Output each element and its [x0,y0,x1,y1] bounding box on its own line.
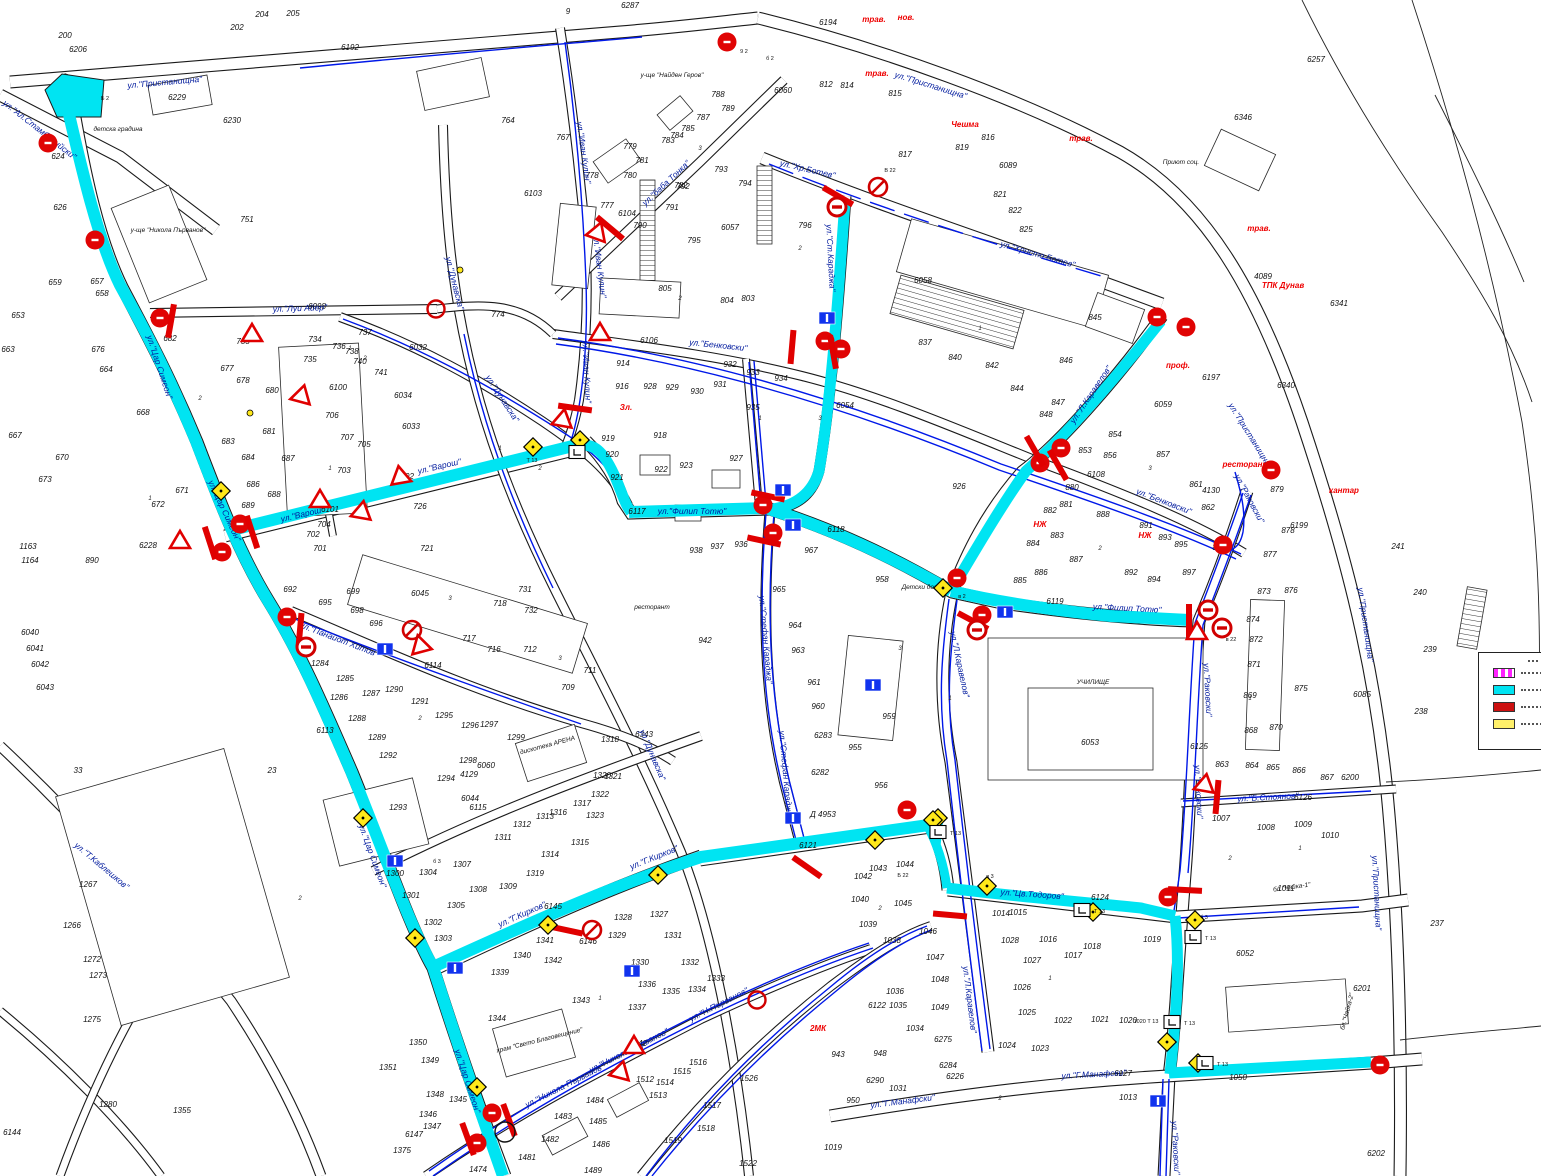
parcel-number: 1010 [1321,831,1339,840]
parcel-number: 1318 [601,735,619,744]
parcel-number: 886 [1034,568,1048,577]
parcel-number: 241 [1390,542,1404,551]
parcel-number: 6115 [469,803,487,812]
poi-label: УЧИЛИЩЕ [1076,679,1110,686]
junction-box-marker [569,446,585,459]
parcel-number: 805 [658,284,672,293]
sign-glyph [394,857,396,865]
parcel-number: 1513 [649,1091,667,1100]
parcel-number: 6040 [21,628,39,637]
parcel-number: 965 [772,585,786,594]
parcel-number: 238 [1413,707,1428,716]
parcel-number: 6052 [1236,949,1254,958]
parcel-number: 1019 [824,1143,842,1152]
map-canvas[interactable]: 2006206204205202619262879619462296230751… [0,0,1541,1176]
parcel-number: 6145 [544,902,562,911]
parcel-number: 853 [1078,446,1092,455]
hydrant-glyph [157,317,164,319]
subparcel-number: 1 [1048,976,1051,982]
parcel-number: 658 [95,289,109,298]
parcel-number: 854 [1108,430,1122,439]
parcel-number: 6202 [1367,1149,1385,1158]
parcel-number: 1346 [419,1110,437,1119]
parcel-number: 659 [48,278,62,287]
parcel-number: 731 [518,585,531,594]
red-bar-marker [202,526,218,560]
parcel-number: 777 [600,201,614,210]
hydrant-glyph [92,239,99,241]
no-entry-bar [972,628,982,631]
parcel-number: 712 [523,645,537,654]
hydrant-glyph [45,142,52,144]
street-name-label: ул."Раковски" [1202,662,1215,718]
parcel-number: 1022 [1054,1016,1072,1025]
parcel-number: 1028 [1001,936,1019,945]
utility-line [556,344,1236,559]
path-line [1302,0,1532,402]
parcel-number: 200 [57,31,72,40]
parcel-number: 677 [220,364,234,373]
junction-box-marker: Т 13 [1185,931,1216,944]
parcel-number: 1315 [571,838,589,847]
parcel-number: 1285 [336,674,354,683]
parcel-number: 861 [1189,480,1202,489]
parcel-number: 942 [698,636,712,645]
parcel-number: 943 [831,1050,845,1059]
parcel-number: 695 [318,598,332,607]
parcel-number: 6197 [1202,373,1220,382]
info-sign-marker [387,855,403,867]
parcel-number: 782 [674,181,688,190]
parcel-number: 890 [85,556,99,565]
parcel-number: 872 [1249,635,1263,644]
parcel-number: 796 [798,221,812,230]
parcel-number: 1484 [586,1096,604,1105]
parcel-number: 1014 [992,909,1010,918]
info-sign-marker [785,519,801,531]
warning-triangle-marker [590,323,610,340]
parcel-number: 1046 [919,927,937,936]
parcel-number: 6201 [1353,984,1371,993]
parcel-number: 1350 [409,1038,427,1047]
parcel-number: 1044 [896,860,914,869]
parcel-number: 1474 [469,1165,487,1174]
parcel-number: 814 [840,81,854,90]
parcel-number: 718 [493,599,507,608]
street-name-label: ул."Цар Симеон" [145,333,176,401]
info-sign-marker [997,606,1013,618]
hydrant-marker [151,309,170,328]
parcel-number: 1290 [385,685,403,694]
subparcel-number: 1 [758,416,761,422]
parcel-number: 1316 [549,808,567,817]
parcel-number: 1050 [1229,1073,1247,1082]
hydrant-marker [1148,308,1167,327]
parcel-number: 1329 [608,931,626,940]
parcel-number: 6113 [316,726,334,735]
parcel-number: 967 [804,546,818,555]
legend-swatch [1493,668,1515,678]
parcel-number: 1312 [513,820,531,829]
parcel-number: 204 [254,10,269,19]
parcel-number: 788 [711,90,725,99]
subparcel-number: 2 [362,356,367,362]
parcel-number: 1309 [499,882,517,891]
parcel-number: 1308 [469,885,487,894]
parcel-number: 741 [374,368,387,377]
parcel-number: 959 [882,712,896,721]
legend-swatch [1493,685,1515,695]
box-label: Т 13 [1205,936,1216,942]
hydrant-glyph [979,614,986,616]
parcel-number: 865 [1266,763,1280,772]
parcel-number: 1007 [1212,814,1230,823]
parcel-number: 1482 [541,1135,559,1144]
parcel-number: 6060 [774,86,792,95]
building [417,58,490,111]
poi-label: Приют соц. [1163,159,1200,166]
parcel-number: 935 [746,403,760,412]
parcel-number: 825 [1019,225,1033,234]
parcel-number: 1024 [998,1041,1016,1050]
parcel-number: 701 [313,544,326,553]
parcel-number: 926 [952,482,966,491]
parcel-number: 1291 [411,697,429,706]
parcel-number: 934 [774,374,788,383]
parcel-number: 1008 [1257,823,1275,832]
parcel-number: 963 [791,646,805,655]
parcel-number: 717 [462,634,476,643]
red-bar-marker [788,330,797,364]
parcel-number: 1302 [424,918,442,927]
parcel-number: 707 [340,433,354,442]
parcel-number: 6104 [618,209,636,218]
parcel-number: 1299 [507,733,525,742]
parcel-number: 877 [1263,550,1277,559]
parcel-number: 1314 [541,850,559,859]
parcel-number: 6124 [1091,893,1109,902]
sign-glyph [826,314,828,322]
parcel-number: 1280 [99,1100,117,1109]
parcel-number: 1164 [21,556,39,565]
no-entry-bar [832,205,842,208]
hydrant-glyph [1058,447,1065,449]
parcel-number: 1515 [673,1067,691,1076]
marker-code-label: б 3 [433,859,441,865]
parcel-number: 6199 [1290,521,1308,530]
marker-code-label: в 2 [958,594,966,600]
parcel-number: 961 [807,678,820,687]
parcel-number: 870 [1269,723,1283,732]
parcel-number: 1514 [656,1078,674,1087]
parcel-number: 1288 [348,714,366,723]
street-name-label: ул."Ст.Караджа" [824,223,838,293]
parcel-number: 6147 [405,1130,423,1139]
subparcel-number: 2 [1097,546,1102,552]
parcel-number: 1317 [573,799,591,808]
parcel-number: 1340 [513,951,531,960]
parcel-number: 23 [267,766,277,775]
parcel-number: 881 [1059,500,1072,509]
parcel-number: 732 [524,606,538,615]
parcel-number: 202 [229,23,244,32]
parcel-number: 1048 [931,975,949,984]
parcel-number: 1304 [419,868,437,877]
parcel-number: 1266 [63,921,81,930]
parcel-number: 6282 [811,768,829,777]
parcel-number: 6103 [524,189,542,198]
parcel-number: 1286 [330,693,348,702]
marker-code-label: 9 2 [740,49,748,55]
poi-label: ресторант [633,604,670,611]
parcel-number: 6100 [329,383,347,392]
hydrant-marker [898,801,917,820]
parcel-number: 737 [358,328,372,337]
path-line [1435,95,1524,282]
parcel-number: 671 [175,486,188,495]
parcel-number: 689 [241,501,255,510]
parcel-number: 1333 [707,974,725,983]
parcel-number: 1025 [1018,1008,1036,1017]
road-surface [746,359,759,506]
parcel-number: 663 [1,345,15,354]
parcel-number: 930 [690,387,704,396]
parcel-number: 751 [240,215,253,224]
legend-label-dots [1521,688,1541,691]
parcel-number: 936 [734,540,748,549]
parcel-number: 893 [1158,533,1172,542]
parcel-number: 871 [1247,660,1260,669]
parcel-number: 6045 [411,589,429,598]
building [1028,688,1153,770]
parcel-number: 1284 [311,659,329,668]
hydrant-glyph [284,616,291,618]
subparcel-number: 2 [197,396,202,402]
parcel-number: 857 [1156,450,1170,459]
hydrant-glyph [489,1112,496,1114]
parcel-number: 1307 [453,860,471,869]
parcel-number: 950 [846,1096,860,1105]
parcel-number: 1483 [554,1112,572,1121]
legend-item [1493,717,1541,730]
parcel-number: 683 [221,437,235,446]
parcel-number: 920 [605,450,619,459]
box-label: Т 13 [1094,909,1105,915]
red-annotation: Зл. [620,403,632,412]
slash [586,924,598,936]
parcel-number: 6283 [814,731,832,740]
parcel-number: 1019 [1143,935,1161,944]
warning-triangle-marker [242,324,262,341]
legend [1478,652,1541,750]
subparcel-number: 1 [948,696,951,702]
slash [406,624,418,636]
parcel-number: 1049 [931,1003,949,1012]
street-name-label: ул."Дунавска" [443,255,466,312]
parcel-number: 880 [1065,483,1079,492]
hydrant-glyph [904,809,911,811]
parcel-number: 847 [1051,398,1065,407]
road-surface [586,441,1192,621]
junction-box-marker: Т 13 [1164,1016,1195,1029]
parcel-number: 789 [721,104,735,113]
hydrant-glyph [1220,544,1227,546]
parcel-number: 1293 [389,803,407,812]
hydrant-glyph [760,504,767,506]
parcel-number: 1039 [859,920,877,929]
parcel-number: 4130 [1202,486,1220,495]
subparcel-number: 2 [997,1096,1002,1102]
parcel-number: 897 [1182,568,1196,577]
parcel-number: 696 [369,619,383,628]
parcel-number: 960 [811,702,825,711]
parcel-number: 1351 [379,1063,397,1072]
parcel-number: 668 [136,408,150,417]
parcel-number: 626 [53,203,67,212]
parcel-number: 6059 [1154,400,1172,409]
parcel-number: 726 [413,502,427,511]
parcel-number: 705 [357,440,371,449]
parcel-number: 790 [633,221,647,230]
parcel-number: 793 [714,165,728,174]
parcel-number: 956 [874,781,888,790]
building [712,470,740,488]
parcel-number: 6125 [1190,742,1208,751]
parcel-number: 664 [99,365,113,374]
info-sign-marker [624,965,640,977]
parcel-number: 767 [556,133,570,142]
sign-glyph [782,486,784,494]
parcel-number: 1321 [604,772,622,781]
yellow-dot-marker [457,267,463,273]
red-annotation: проф. [1166,361,1190,370]
parcel-number: 1332 [681,958,699,967]
info-sign-marker [775,484,791,496]
parcel-number: 721 [420,544,433,553]
parcel-number: 1009 [1294,820,1312,829]
parcel-number: 6057 [721,223,739,232]
hydrant-marker [1371,1056,1390,1075]
sign-glyph [1004,608,1006,616]
legend-label-dots [1521,671,1541,674]
parcel-number: 6053 [1081,738,1099,747]
red-annotation: кантар [1329,486,1359,495]
parcel-number: 1047 [926,953,944,962]
parcel-number: 1517 [703,1101,721,1110]
parcel-number: 1516 [689,1058,707,1067]
parcel-number: 955 [848,743,862,752]
hydrant-glyph [822,340,829,342]
info-sign-marker [447,962,463,974]
parcel-number: 895 [1174,540,1188,549]
parcel-number: 6114 [424,661,442,670]
road-surface [0,95,216,230]
parcel-number: 6119 [1046,597,1064,606]
parcel-number: 1017 [1064,951,1082,960]
parcel-number: 867 [1320,773,1334,782]
parcel-number: 6121 [799,841,817,850]
parcel-number: 1335 [662,987,680,996]
parcel-number: 1287 [362,689,380,698]
parcel-number: 6284 [939,1061,957,1070]
red-annotation: НЖ [1138,531,1152,540]
parcel-number: 1336 [638,980,656,989]
marker-code-label: Б 22 [897,873,908,879]
box-body [930,826,946,839]
parcel-number: 681 [262,427,275,436]
parcel-number: 1013 [1119,1093,1137,1102]
sign-glyph [384,645,386,653]
parcel-number: 1300 [386,869,404,878]
parcel-number: 692 [283,585,297,594]
street-name-label: ул."Л.Каравелов" [948,629,972,699]
no-entry-sign [297,638,315,656]
parcel-number: 922 [654,465,668,474]
parcel-number: 686 [246,480,260,489]
parcel-number: 1311 [494,833,511,842]
hydrant-marker [86,231,105,250]
parcel-number: 1348 [426,1090,444,1099]
parcel-number: 237 [1429,919,1444,928]
subparcel-number: 2 [537,466,542,472]
hydrant-glyph [474,1142,481,1144]
parcel-number: 1349 [421,1056,439,1065]
parcel-number: 819 [955,143,969,152]
parcel-number: 1015 [1009,908,1027,917]
parcel-number: 1342 [544,956,562,965]
parcel-number: 703 [337,466,351,475]
subparcel-number: 2 [1227,856,1232,862]
parcel-number: 817 [898,150,912,159]
parcel-number: 6117 [628,507,646,516]
street-name-label: ул."Луи Айер" [272,302,329,314]
parcel-number: 932 [723,360,737,369]
parcel-number: 1292 [379,751,397,760]
subparcel-number: 1 [1248,696,1251,702]
parcel-number: 1512 [636,1075,654,1084]
no-entry-sign [1213,619,1231,637]
hydrant-glyph [1183,326,1190,328]
parcel-number: 734 [308,335,322,344]
parcel-number: 239 [1422,645,1437,654]
parcel-number: 706 [325,411,339,420]
parcel-number: 887 [1069,555,1083,564]
parcel-number: 919 [601,434,615,443]
parcel-number: 698 [350,606,364,615]
parcel-number: 1038 [883,936,901,945]
sign-glyph [872,681,874,689]
marker-code-label: 1020 Т 13 [1134,1019,1159,1025]
parcel-number: 816 [981,133,995,142]
parcel-number: 1375 [393,1146,411,1155]
box-label: Т 13 [1184,1021,1195,1027]
subparcel-number: 2 [417,716,422,722]
parcel-number: 1294 [437,774,455,783]
parcel-number: 938 [689,546,703,555]
hydrant-glyph [724,41,731,43]
parcel-number: 6206 [69,45,87,54]
parcel-number: 937 [710,542,724,551]
info-sign-marker [785,812,801,824]
parcel-number: 6041 [26,644,44,653]
hydrant-marker [483,1104,502,1123]
subparcel-number: 3 [698,146,702,152]
parcel-number: 687 [281,454,295,463]
hydrant-marker [948,569,967,588]
parcel-number: 6346 [1234,113,1252,122]
street-name-label: ул."Стефан Караджа" [757,594,775,685]
parcel-number: 1322 [591,790,609,799]
